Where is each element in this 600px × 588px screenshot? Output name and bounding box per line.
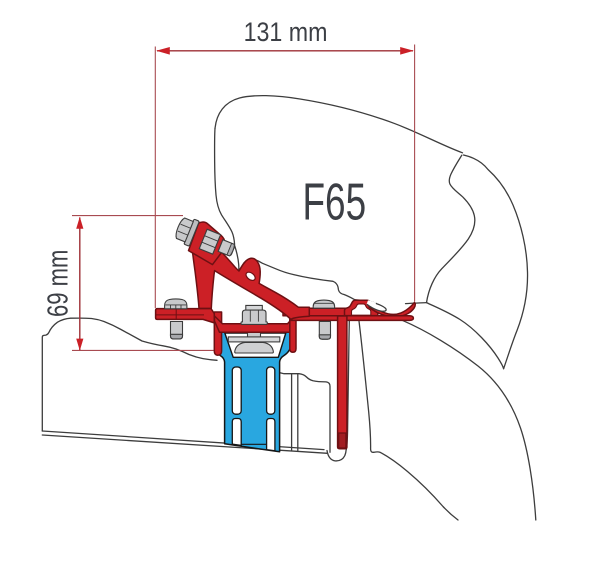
svg-text:69 mm: 69 mm [43,250,75,317]
svg-text:F65: F65 [303,172,367,231]
svg-text:131 mm: 131 mm [244,17,328,47]
